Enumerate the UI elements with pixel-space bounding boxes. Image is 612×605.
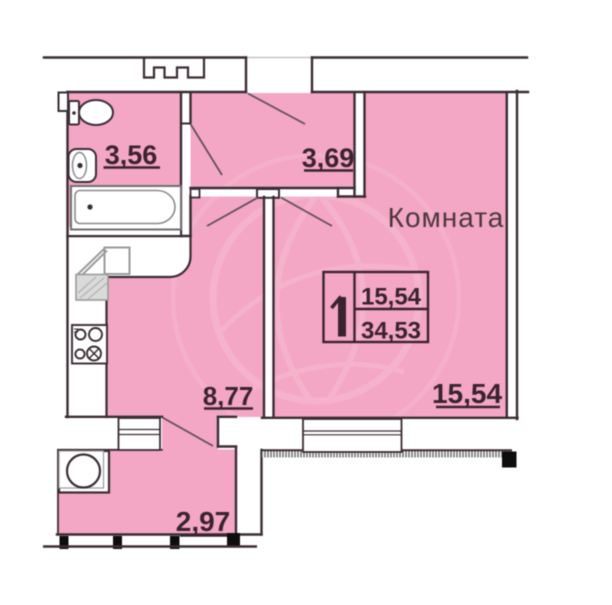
svg-text:3,69: 3,69	[302, 143, 355, 173]
svg-text:15,54: 15,54	[432, 378, 502, 409]
svg-text:34,53: 34,53	[361, 318, 421, 345]
svg-text:15,54: 15,54	[361, 284, 422, 311]
svg-text:Комната: Комната	[388, 202, 505, 233]
svg-text:3,56: 3,56	[105, 140, 158, 170]
svg-text:2,97: 2,97	[176, 506, 231, 537]
svg-text:8,77: 8,77	[203, 381, 254, 411]
